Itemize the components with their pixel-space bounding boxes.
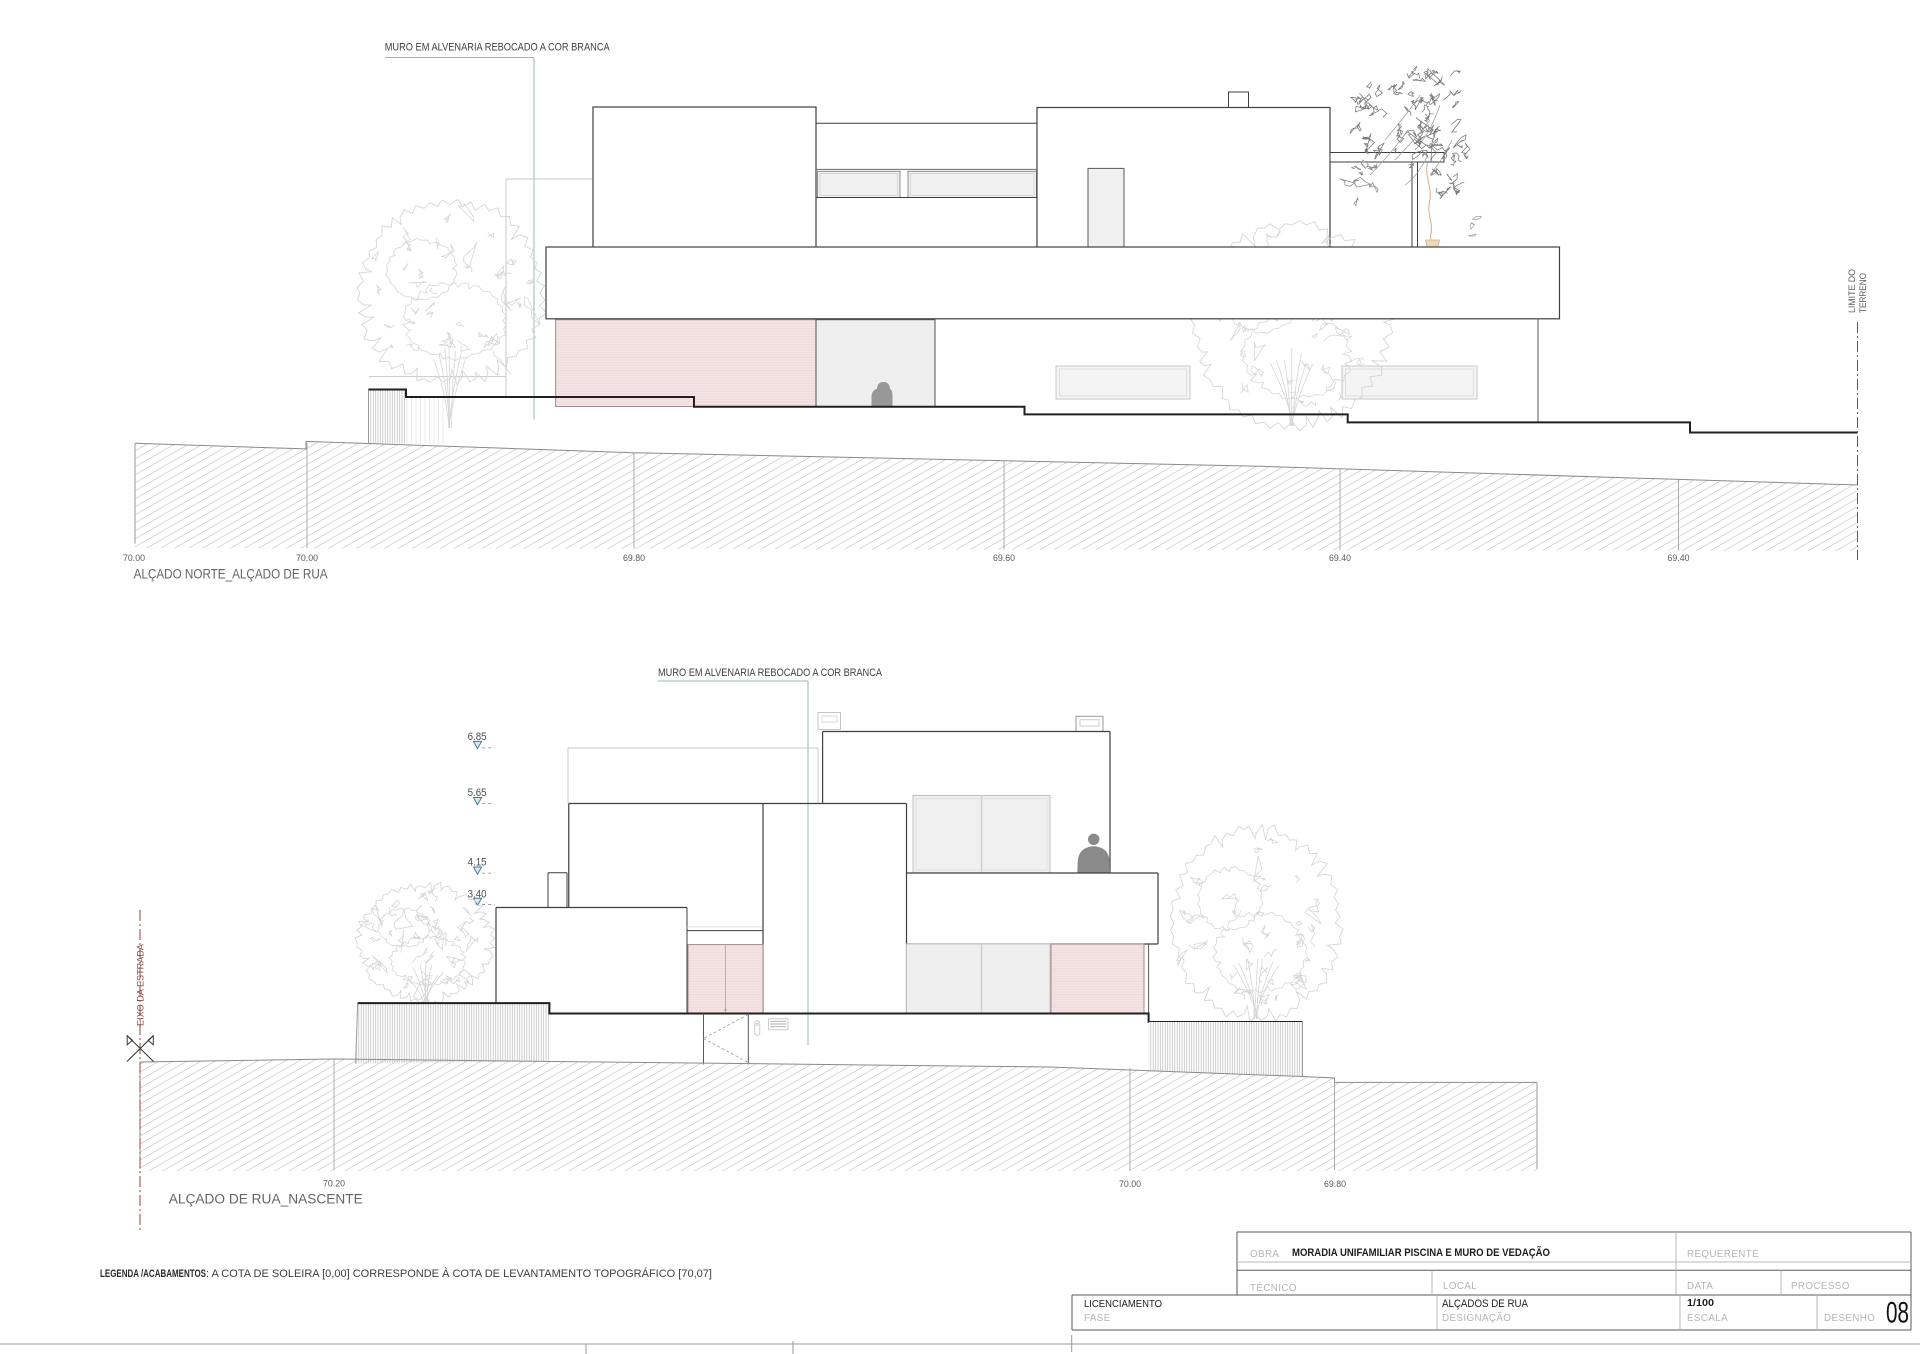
svg-text:LEGENDA /ACABAMENTOS: LEGENDA /ACABAMENTOS bbox=[100, 1268, 206, 1280]
svg-text:69.40: 69.40 bbox=[1667, 553, 1689, 563]
svg-text:MORADIA UNIFAMILIAR PISCINA E: MORADIA UNIFAMILIAR PISCINA E MURO DE VE… bbox=[1292, 1246, 1550, 1259]
svg-text:ESCALA: ESCALA bbox=[1687, 1313, 1728, 1324]
svg-text:ALÇADO NORTE_ALÇADO DE RUA: ALÇADO NORTE_ALÇADO DE RUA bbox=[134, 567, 328, 582]
svg-text:TERRENO: TERRENO bbox=[1858, 273, 1868, 313]
svg-text:TÉCNICO: TÉCNICO bbox=[1250, 1283, 1297, 1294]
svg-text:: A COTA DE SOLEIRA [0,00] COR: : A COTA DE SOLEIRA [0,00] CORRESPONDE À… bbox=[206, 1267, 712, 1280]
svg-text:REQUERENTE: REQUERENTE bbox=[1687, 1249, 1759, 1260]
svg-text:DESENHO: DESENHO bbox=[1824, 1313, 1875, 1324]
svg-text:70.00: 70.00 bbox=[1119, 1179, 1141, 1189]
svg-text:DATA: DATA bbox=[1687, 1281, 1713, 1292]
svg-text:LIMITE DO: LIMITE DO bbox=[1847, 269, 1857, 313]
svg-text:LICENCIAMENTO: LICENCIAMENTO bbox=[1084, 1298, 1162, 1310]
svg-text:EIXO DA ESTRADA: EIXO DA ESTRADA bbox=[136, 944, 146, 1026]
svg-text:70.00: 70.00 bbox=[123, 553, 145, 563]
svg-text:FASE: FASE bbox=[1084, 1313, 1111, 1324]
svg-text:69.80: 69.80 bbox=[623, 553, 645, 563]
svg-text:69.60: 69.60 bbox=[993, 553, 1015, 563]
svg-text:08: 08 bbox=[1886, 1297, 1909, 1330]
svg-text:MURO EM ALVENARIA REBOCADO A C: MURO EM ALVENARIA REBOCADO A COR BRANCA bbox=[658, 667, 883, 679]
svg-text:69.80: 69.80 bbox=[1324, 1179, 1346, 1189]
svg-text:1/100: 1/100 bbox=[1687, 1297, 1714, 1309]
svg-text:OBRA: OBRA bbox=[1250, 1249, 1279, 1260]
svg-text:LOCAL: LOCAL bbox=[1443, 1281, 1477, 1292]
svg-text:ALÇADO DE RUA_NASCENTE: ALÇADO DE RUA_NASCENTE bbox=[169, 1192, 363, 1207]
svg-text:PROCESSO: PROCESSO bbox=[1791, 1281, 1850, 1292]
svg-text:MURO EM ALVENARIA REBOCADO A C: MURO EM ALVENARIA REBOCADO A COR BRANCA bbox=[385, 42, 611, 54]
svg-text:DESIGNAÇÃO: DESIGNAÇÃO bbox=[1442, 1313, 1511, 1324]
svg-text:69.40: 69.40 bbox=[1329, 553, 1351, 563]
svg-text:70.00: 70.00 bbox=[296, 553, 318, 563]
svg-text:70.20: 70.20 bbox=[323, 1178, 345, 1188]
svg-text:ALÇADOS DE RUA: ALÇADOS DE RUA bbox=[1442, 1298, 1529, 1310]
